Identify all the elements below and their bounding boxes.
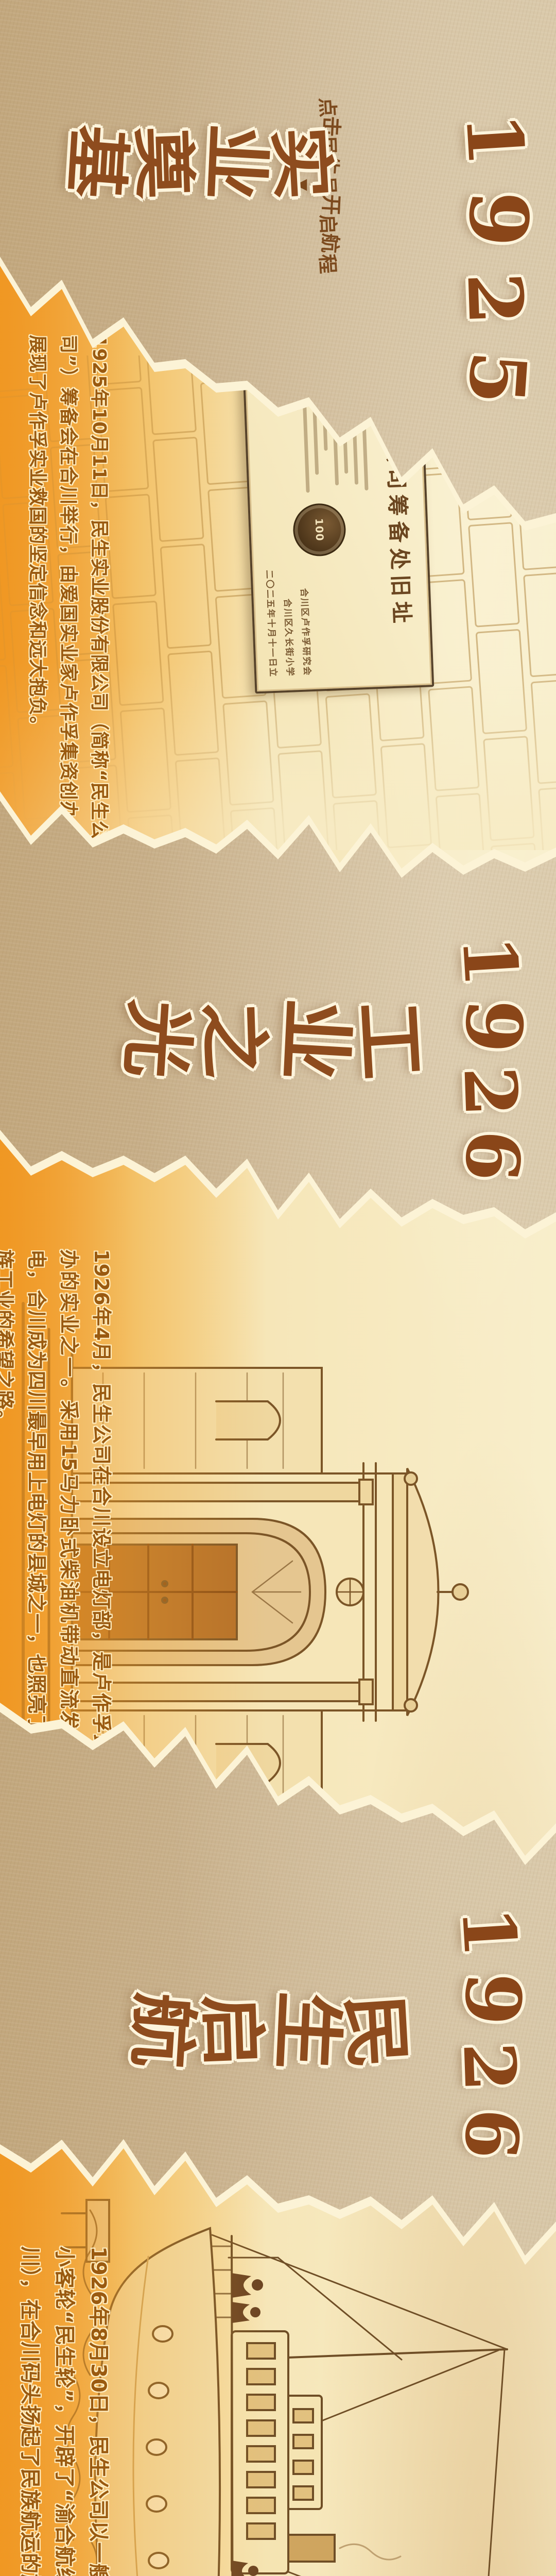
paragraph-1925: 1925年10月11日，民生实业股份有限公司（简称“民生公司”）筹备会在合川举行… bbox=[22, 335, 114, 840]
plaque-attribution-line: 二〇二五年十月十一日立 bbox=[264, 570, 281, 678]
year-1925: 1925 bbox=[458, 112, 534, 405]
year-1926-industry: 1926 bbox=[455, 935, 528, 1182]
year-1926-voyage: 1926 bbox=[454, 1906, 526, 2160]
plaque-attribution-line: 合川区久长街小学 bbox=[282, 598, 298, 677]
plaque-seal-icon: 100 bbox=[292, 502, 347, 557]
timeline-long-scroll: 点击民生号开启航程 ▼ 1925 实业奠基 民生公司筹备处旧址 bbox=[0, 0, 556, 2576]
title-shiye-dianji: 实业奠基 bbox=[63, 126, 335, 198]
title-minsheng-qihang: 民生启航 bbox=[127, 1993, 411, 2068]
plaque-attribution-line: 合川区卢作孚研究会 bbox=[299, 588, 315, 676]
title-gongye-zhiguang: 工业之光 bbox=[119, 1001, 426, 1078]
paragraph-1926-industry: 1926年4月，民生公司在合川设立电灯部，是卢作孚最早创办的实业之一。采用15马… bbox=[0, 1249, 117, 1795]
paragraph-1926-voyage: 1926年8月30日，民生公司以一艘载重70吨的小客轮“民生轮”，开辟了“渝合航… bbox=[13, 2246, 115, 2576]
